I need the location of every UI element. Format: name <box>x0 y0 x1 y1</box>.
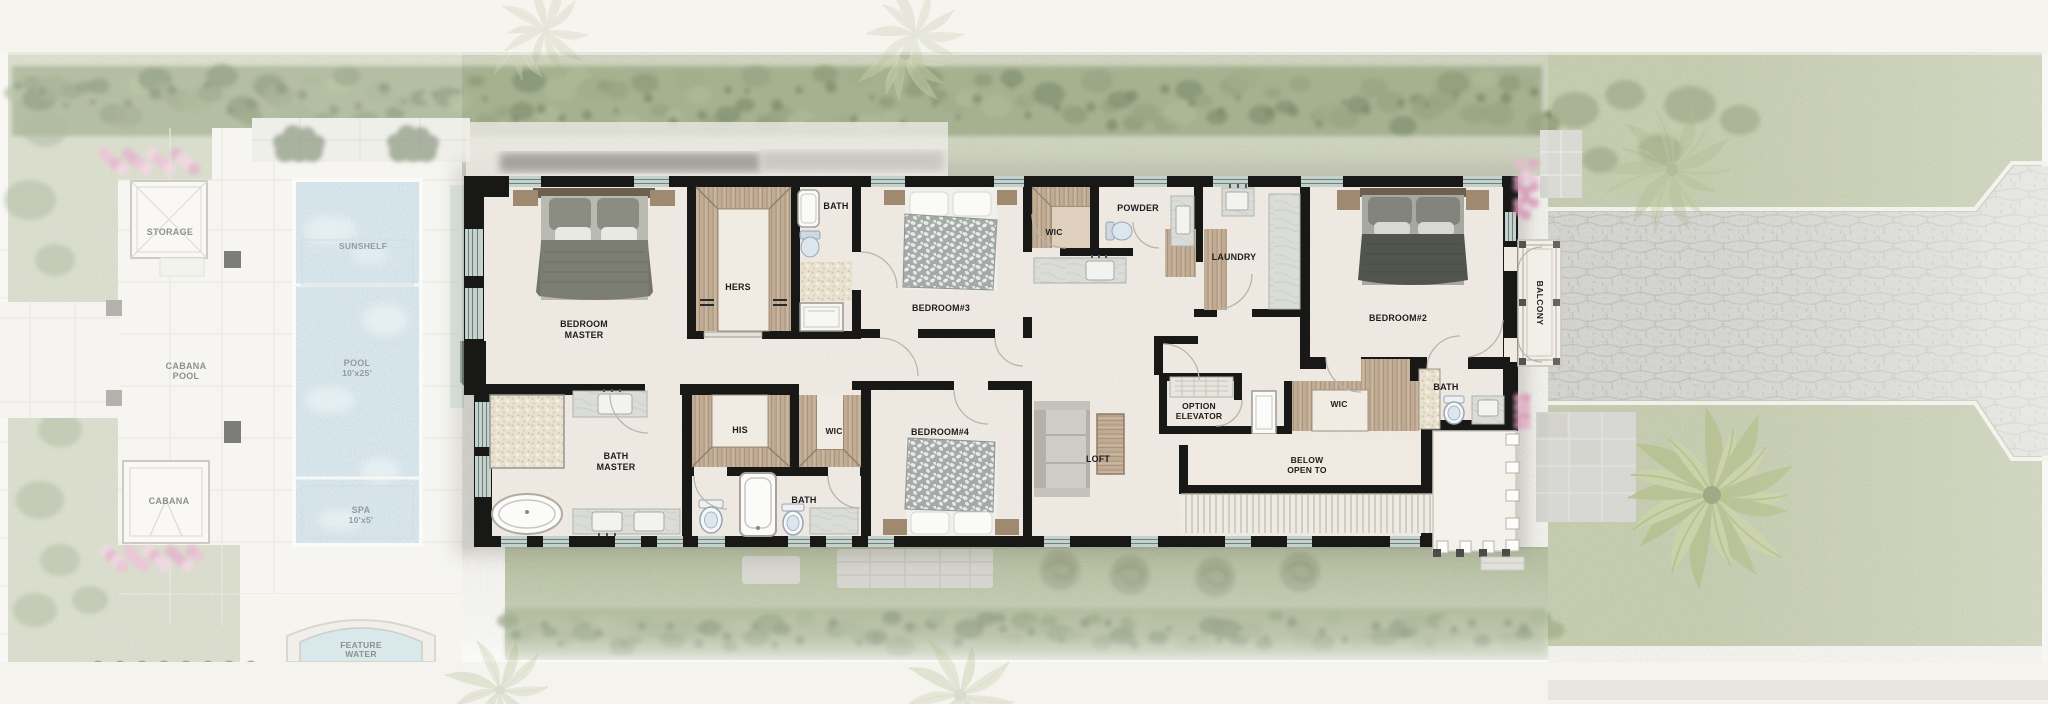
svg-text:WATER: WATER <box>345 649 377 659</box>
svg-text:HIS: HIS <box>732 425 748 435</box>
svg-text:MASTER: MASTER <box>597 462 636 472</box>
svg-text:POOL: POOL <box>173 371 200 381</box>
svg-text:OPEN TO: OPEN TO <box>1287 465 1327 475</box>
svg-text:HERS: HERS <box>725 282 750 292</box>
svg-text:10'x25': 10'x25' <box>342 368 372 378</box>
svg-text:WIC: WIC <box>1045 227 1062 237</box>
svg-text:BATH: BATH <box>604 451 629 461</box>
svg-text:SUNSHELF: SUNSHELF <box>339 241 387 251</box>
svg-text:BALCONY: BALCONY <box>1535 281 1545 326</box>
svg-text:LAUNDRY: LAUNDRY <box>1212 252 1256 262</box>
svg-text:CABANA: CABANA <box>149 496 190 506</box>
svg-text:BEDROOM#4: BEDROOM#4 <box>911 427 969 437</box>
svg-text:WIC: WIC <box>1330 399 1347 409</box>
svg-text:ELEVATOR: ELEVATOR <box>1176 411 1222 421</box>
svg-text:OPTION: OPTION <box>1182 401 1216 411</box>
svg-text:BELOW: BELOW <box>1291 455 1324 465</box>
svg-text:STORAGE: STORAGE <box>147 227 193 237</box>
svg-text:WIC: WIC <box>825 426 842 436</box>
svg-text:MASTER: MASTER <box>565 330 604 340</box>
svg-text:POOL: POOL <box>344 358 371 368</box>
svg-text:LOFT: LOFT <box>1086 454 1110 464</box>
svg-text:BATH: BATH <box>1433 382 1458 392</box>
svg-text:BEDROOM#3: BEDROOM#3 <box>912 303 970 313</box>
svg-text:10'x5': 10'x5' <box>349 515 374 525</box>
svg-text:BEDROOM: BEDROOM <box>560 319 608 329</box>
svg-text:POWDER: POWDER <box>1117 203 1159 213</box>
svg-text:BEDROOM#2: BEDROOM#2 <box>1369 313 1427 323</box>
svg-text:CABANA: CABANA <box>166 361 207 371</box>
svg-text:BATH: BATH <box>791 495 816 505</box>
svg-text:BATH: BATH <box>823 201 848 211</box>
svg-text:SPA: SPA <box>352 505 371 515</box>
